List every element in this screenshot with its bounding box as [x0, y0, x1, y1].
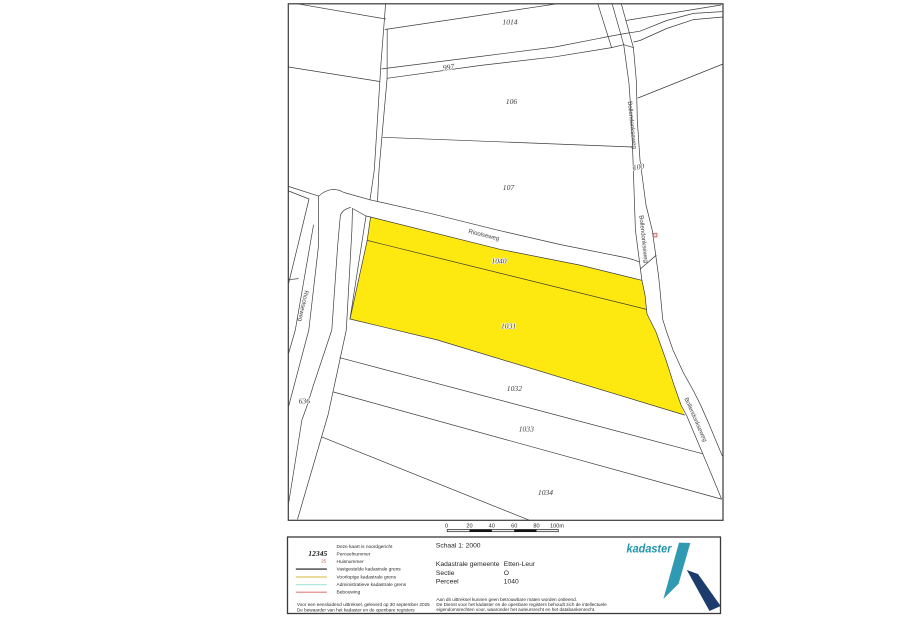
- svg-text:20: 20: [466, 524, 472, 530]
- svg-text:40: 40: [489, 524, 495, 530]
- svg-text:60: 60: [511, 524, 517, 530]
- svg-text:Perceel: Perceel: [436, 579, 459, 586]
- svg-text:1034: 1034: [538, 488, 553, 497]
- svg-text:Sectie: Sectie: [436, 570, 455, 577]
- svg-text:Perceelnummer: Perceelnummer: [337, 551, 371, 557]
- svg-text:1033: 1033: [519, 424, 534, 433]
- svg-text:eigendomsrechten voor, waarond: eigendomsrechten voor, waaronder het aut…: [436, 607, 595, 612]
- svg-text:Voorlopige kadastrale grens: Voorlopige kadastrale grens: [337, 575, 397, 581]
- svg-text:Etten-Leur: Etten-Leur: [504, 561, 536, 568]
- svg-text:Kadastrale gemeente: Kadastrale gemeente: [436, 561, 500, 568]
- svg-text:0: 0: [445, 524, 448, 530]
- svg-text:80: 80: [533, 524, 539, 530]
- svg-text:kadaster: kadaster: [627, 542, 673, 556]
- svg-text:Vastgestelde kadastrale grens: Vastgestelde kadastrale grens: [337, 567, 402, 573]
- svg-text:Bebouwing: Bebouwing: [337, 590, 361, 596]
- svg-text:12345: 12345: [308, 549, 327, 558]
- svg-text:Voor een eensluidend uittrekse: Voor een eensluidend uittreksel, gelever…: [297, 602, 430, 607]
- svg-text:1014: 1014: [502, 17, 517, 26]
- svg-text:25: 25: [321, 558, 326, 563]
- svg-text:Deze kaart is noordgericht: Deze kaart is noordgericht: [337, 544, 394, 550]
- svg-text:106: 106: [506, 97, 518, 106]
- svg-text:1031: 1031: [501, 322, 516, 331]
- svg-text:De bewaarder van het kadaster: De bewaarder van het kadaster en de open…: [297, 607, 415, 612]
- svg-text:100m: 100m: [550, 524, 564, 530]
- svg-text:636: 636: [299, 397, 311, 406]
- svg-text:107: 107: [503, 183, 516, 192]
- svg-text:1040: 1040: [504, 579, 519, 586]
- svg-text:Schaal 1: 2000: Schaal 1: 2000: [436, 543, 481, 550]
- svg-text:Huisnummer: Huisnummer: [337, 559, 365, 565]
- svg-text:Administratieve kadastrale gre: Administratieve kadastrale grens: [337, 582, 407, 588]
- svg-text:O: O: [504, 570, 509, 577]
- svg-text:1032: 1032: [507, 384, 522, 393]
- svg-text:1040: 1040: [491, 256, 506, 265]
